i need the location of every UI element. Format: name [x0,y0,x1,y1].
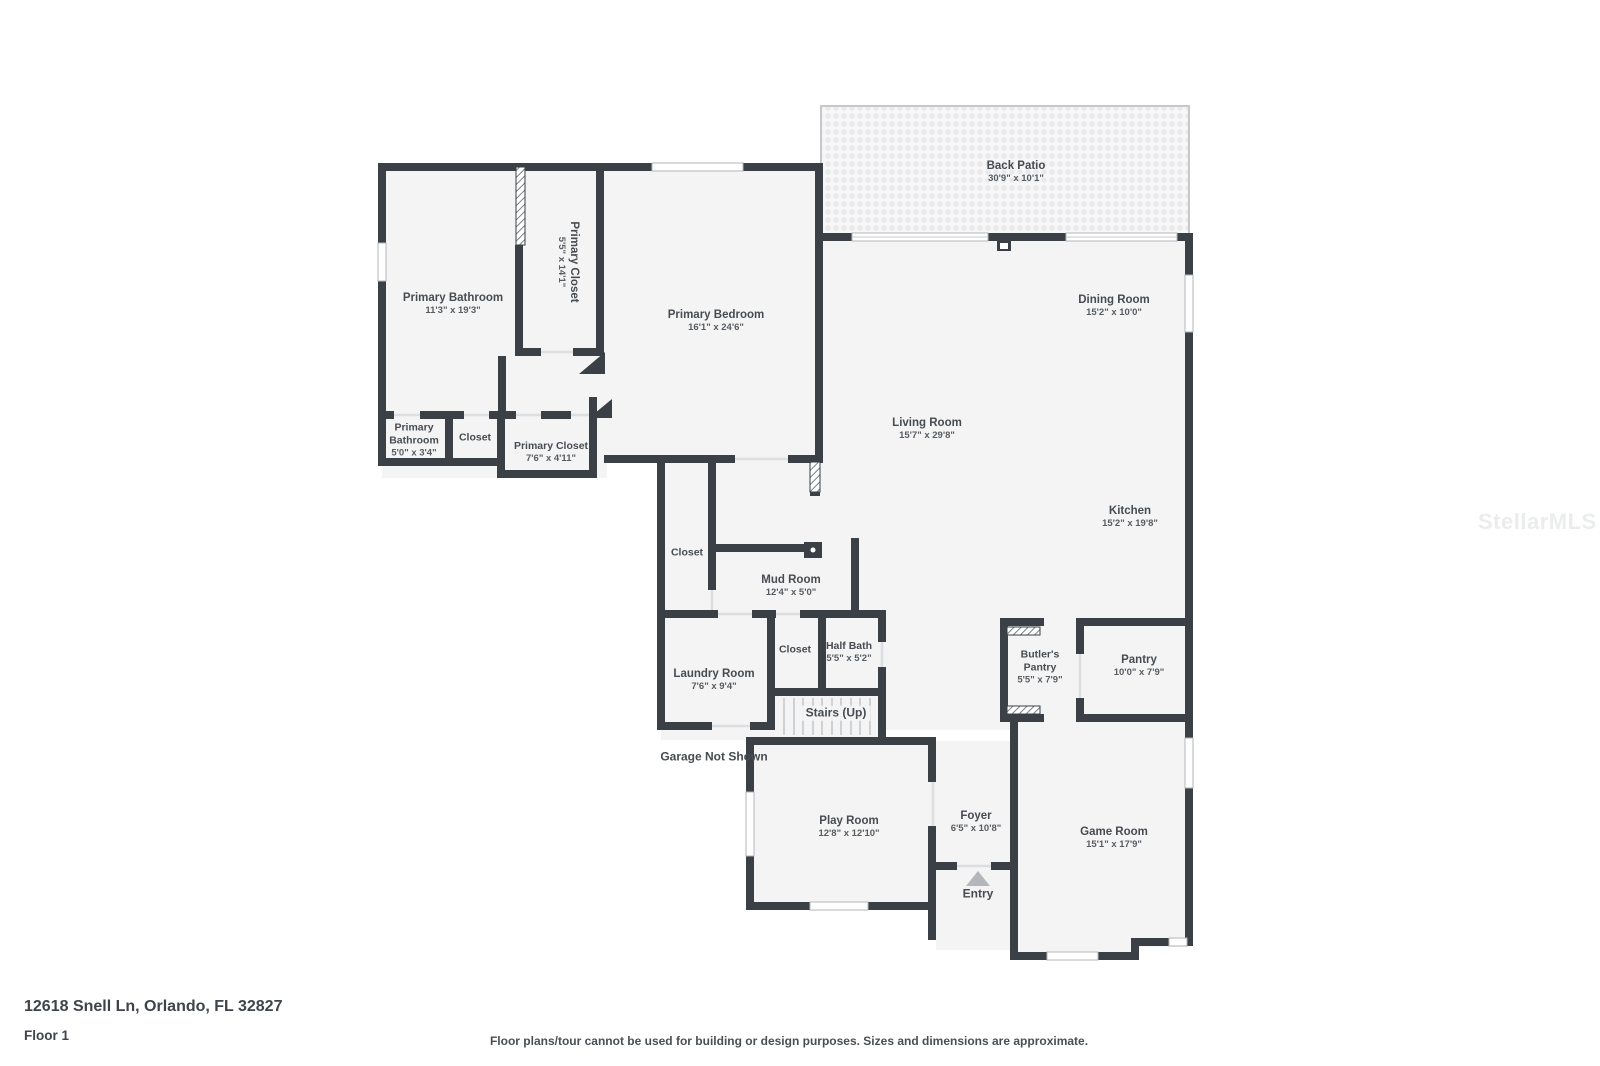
room-name: Pantry [1114,653,1165,667]
room-name: Closet [671,547,703,560]
room-dims: 5'0" x 3'4" [383,447,445,459]
room-label-primary-closet: Primary Closet 5'5" x 14'1" [555,221,581,302]
room-label-play-room: Play Room 12'8" x 12'10" [818,814,879,840]
room-label-half-bath: Half Bath 5'5" x 5'2" [826,640,872,664]
room-dims: 7'6" x 9'4" [673,681,754,693]
floorplan-page: Back Patio 30'9" x 10'1" Primary Bathroo… [0,0,1600,1066]
room-name: Game Room [1080,825,1148,839]
room-label-dining-room: Dining Room 15'2" x 10'0" [1078,293,1150,319]
room-name: Back Patio [987,159,1046,173]
room-name: Primary Bedroom [668,308,765,322]
stairs-text: Stairs (Up) [806,706,867,721]
room-label-kitchen: Kitchen 15'2" x 19'8" [1102,504,1158,530]
room-name: Closet [459,432,491,445]
room-dims: 15'1" x 17'9" [1080,839,1148,851]
room-name: Laundry Room [673,667,754,681]
room-label-pantry: Pantry 10'0" x 7'9" [1114,653,1165,679]
room-label-living-room: Living Room 15'7" x 29'8" [892,416,962,442]
room-label-closet-3: Closet [779,644,811,657]
room-label-butlers-pantry: Butler's Pantry 5'5" x 7'9" [1012,648,1068,685]
room-dims: 10'0" x 7'9" [1114,667,1165,679]
room-name: Primary Bathroom [383,421,445,447]
room-name: Butler's Pantry [1012,648,1068,674]
room-dims: 12'8" x 12'10" [818,828,879,840]
stairs-label: Stairs (Up) [802,706,871,721]
garage-note-label: Garage Not Shown [660,750,767,765]
room-name: Primary Bathroom [403,291,503,305]
room-label-closet-1: Closet [459,432,491,445]
room-dims: 11'3" x 19'3" [403,305,503,317]
room-dims: 15'7" x 29'8" [892,430,962,442]
floorplan-drawing [0,0,1600,1066]
room-dims: 30'9" x 10'1" [987,173,1046,185]
room-label-foyer: Foyer 6'5" x 10'8" [951,809,1002,835]
garage-note-text: Garage Not Shown [660,750,767,765]
room-label-back-patio: Back Patio 30'9" x 10'1" [987,159,1046,185]
room-name: Kitchen [1102,504,1158,518]
room-name: Foyer [951,809,1002,823]
floor-label: Floor 1 [24,1028,69,1043]
room-name: Half Bath [826,640,872,653]
room-dims: 7'6" x 4'11" [514,453,588,465]
room-dims: 16'1" x 24'6" [668,322,765,334]
room-name: Primary Closet [567,221,581,302]
room-label-laundry-room: Laundry Room 7'6" x 9'4" [673,667,754,693]
room-name: Living Room [892,416,962,430]
room-label-game-room: Game Room 15'1" x 17'9" [1080,825,1148,851]
room-label-primary-closet-2: Primary Closet 7'6" x 4'11" [514,440,588,464]
room-dims: 6'5" x 10'8" [951,823,1002,835]
room-label-primary-bathroom-2: Primary Bathroom 5'0" x 3'4" [383,421,445,458]
room-name: Play Room [818,814,879,828]
room-dims: 15'2" x 19'8" [1102,518,1158,530]
room-name: Primary Closet [514,440,588,453]
room-dims: 5'5" x 5'2" [826,653,872,665]
room-name: Closet [779,644,811,657]
address-text: 12618 Snell Ln, Orlando, FL 32827 [24,998,282,1016]
room-dims: 15'2" x 10'0" [1078,307,1150,319]
entry-text: Entry [963,887,994,902]
room-dims: 12'4" x 5'0" [761,587,820,599]
room-label-primary-bathroom: Primary Bathroom 11'3" x 19'3" [403,291,503,317]
room-label-closet-2: Closet [671,547,703,560]
room-fills [382,167,1189,957]
room-label-mud-room: Mud Room 12'4" x 5'0" [761,573,820,599]
room-dims: 5'5" x 14'1" [555,221,567,302]
watermark: StellarMLS [1478,509,1597,535]
room-name: Mud Room [761,573,820,587]
room-dims: 5'5" x 7'9" [1012,674,1068,686]
entry-label: Entry [963,887,994,902]
room-label-primary-bedroom: Primary Bedroom 16'1" x 24'6" [668,308,765,334]
disclaimer-text: Floor plans/tour cannot be used for buil… [490,1034,1088,1048]
room-name: Dining Room [1078,293,1150,307]
